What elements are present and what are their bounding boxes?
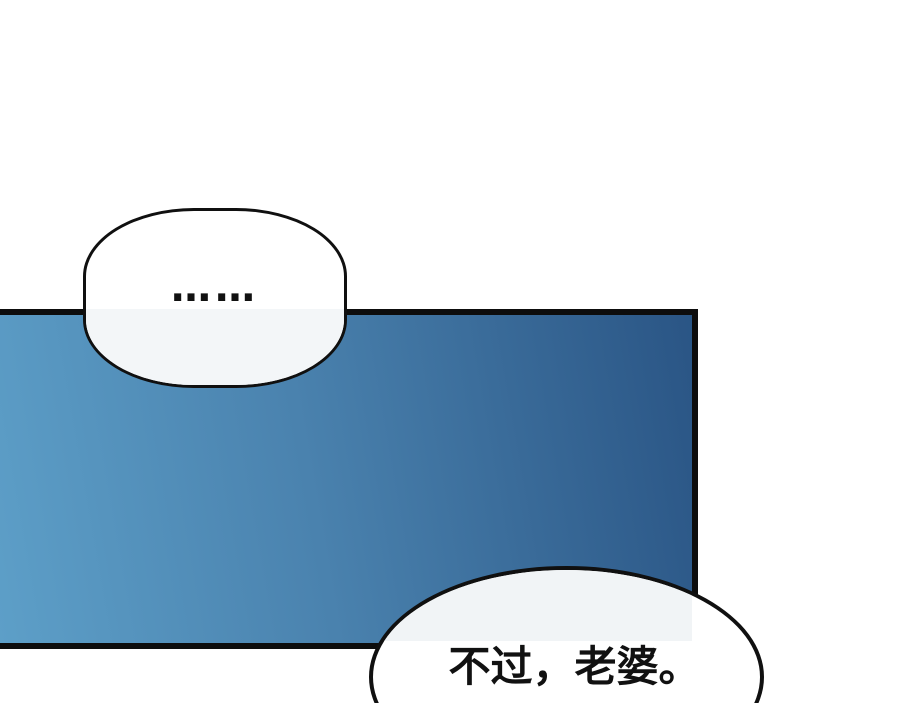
- ellipsis-speech-bubble: ……: [83, 208, 347, 388]
- ellipsis-text: ……: [86, 208, 344, 375]
- speech-bubble: 不过，老婆。: [369, 566, 764, 703]
- speech-text: 不过，老婆。: [381, 644, 764, 690]
- comic-page: …… 不过，老婆。: [0, 0, 900, 703]
- panel-overlap-tint: [373, 570, 692, 641]
